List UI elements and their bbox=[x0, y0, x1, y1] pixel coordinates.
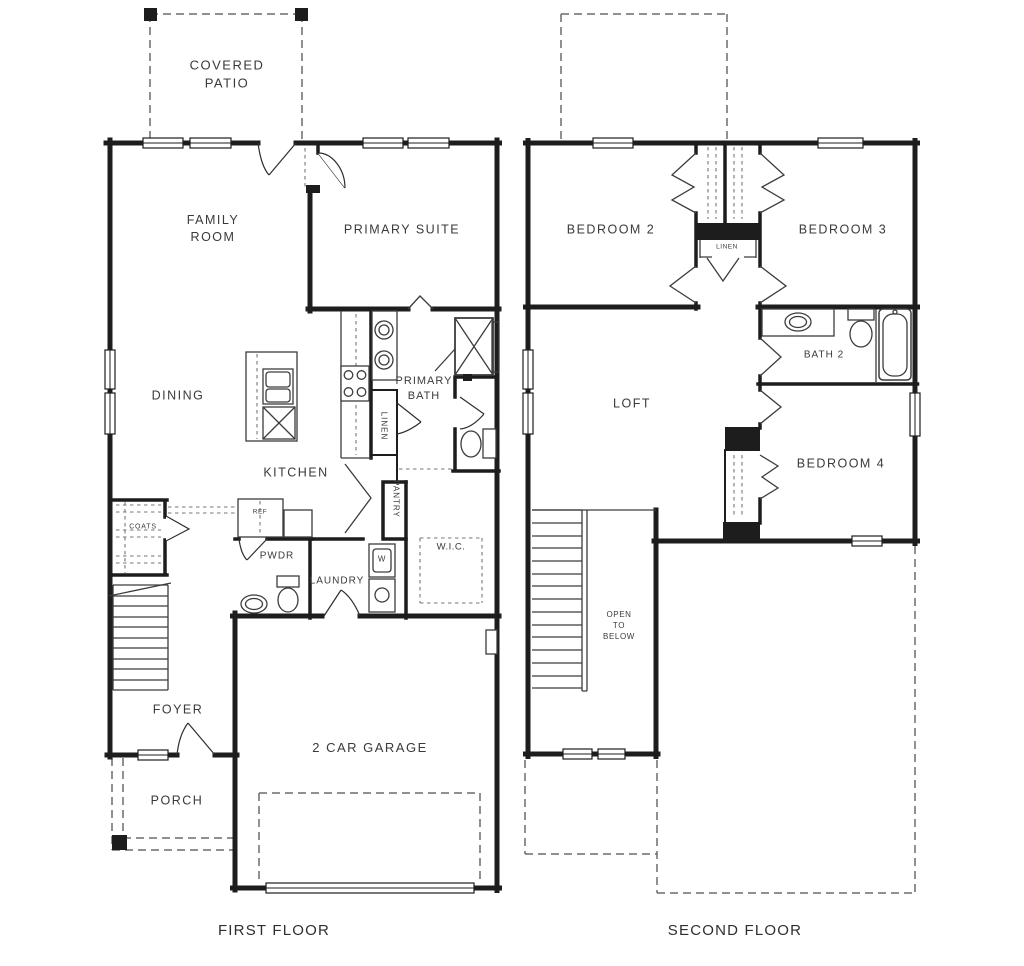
bedroom2-closet-bifold-icon bbox=[672, 153, 696, 213]
bath2-door-icon bbox=[760, 338, 781, 376]
kitchen-fixtures bbox=[168, 311, 371, 537]
bedroom3-closet-bifold-icon bbox=[760, 153, 784, 213]
label-wic: W.I.C. bbox=[437, 542, 466, 555]
label-linen-2: LINEN bbox=[716, 244, 738, 253]
label-foyer: FOYER bbox=[153, 702, 204, 719]
primary-suite-door-icon bbox=[318, 153, 345, 188]
front-door-icon bbox=[177, 723, 215, 755]
bedroom3-door-icon bbox=[760, 266, 786, 303]
coats-closet-interior bbox=[116, 502, 161, 573]
second-floor-plan bbox=[523, 14, 920, 893]
patio-door-icon bbox=[258, 143, 296, 175]
shower-icon bbox=[435, 318, 499, 381]
label-garage: 2 CAR GARAGE bbox=[312, 739, 428, 757]
stairs-first-floor bbox=[109, 583, 171, 690]
label-dining: DINING bbox=[152, 388, 205, 405]
cabinet-dash-line bbox=[168, 507, 237, 513]
label-primary-suite: PRIMARY SUITE bbox=[344, 222, 460, 239]
label-washer: W bbox=[378, 555, 386, 566]
label-bedroom2: BEDROOM 2 bbox=[567, 222, 656, 239]
toilet-icon bbox=[461, 429, 496, 458]
floor-plan-drawing bbox=[0, 0, 1024, 966]
garage-entry-door-icon bbox=[324, 590, 360, 616]
label-primary-bath: PRIMARY BATH bbox=[396, 374, 453, 404]
stairs-second-floor bbox=[532, 510, 587, 691]
label-porch: PORCH bbox=[151, 793, 204, 810]
caption-first-floor: FIRST FLOOR bbox=[218, 921, 330, 941]
coats-door-icon bbox=[166, 516, 189, 541]
first-floor-plan bbox=[105, 8, 500, 893]
vanity-icon bbox=[762, 309, 834, 336]
bedroom4-door-icon bbox=[760, 390, 781, 424]
range-icon bbox=[341, 366, 369, 401]
label-bedroom3: BEDROOM 3 bbox=[799, 222, 888, 239]
bath2-fixtures bbox=[762, 309, 911, 380]
label-linen: LINEN bbox=[378, 412, 389, 441]
label-pantry: PANTRY bbox=[390, 480, 401, 518]
roof-outline-porch bbox=[525, 760, 657, 854]
dryer-icon bbox=[369, 579, 395, 612]
bedroom2-door-icon bbox=[670, 266, 696, 303]
label-open-to-below: OPEN TO BELOW bbox=[603, 610, 635, 642]
floor-plan-image: COVERED PATIO FAMILY ROOM PRIMARY SUITE … bbox=[0, 0, 1024, 966]
sink-icon bbox=[241, 595, 267, 613]
label-bedroom4: BEDROOM 4 bbox=[797, 456, 886, 473]
label-bath2: BATH 2 bbox=[804, 348, 844, 362]
powder-room-fixtures bbox=[241, 576, 299, 613]
water-heater-icon bbox=[486, 630, 497, 654]
refrigerator-icon bbox=[238, 499, 283, 537]
kitchen-side-counter-icon bbox=[284, 510, 312, 537]
primary-bath-door-icon bbox=[397, 403, 421, 434]
label-pwdr: PWDR bbox=[260, 549, 295, 563]
label-covered-patio: COVERED PATIO bbox=[190, 56, 265, 91]
linen-door-icon bbox=[707, 258, 739, 281]
driveway-outline bbox=[259, 793, 480, 883]
toilet-room-door-icon bbox=[460, 397, 484, 429]
covered-patio-outline bbox=[144, 8, 308, 190]
toilet-icon bbox=[277, 576, 299, 612]
double-vanity-icon bbox=[372, 311, 397, 380]
roof-outline-garage bbox=[657, 546, 915, 893]
roof-outline-patio bbox=[561, 14, 727, 143]
hall-opening-icon bbox=[345, 464, 371, 533]
label-ref: REF bbox=[253, 509, 268, 518]
label-loft: LOFT bbox=[613, 396, 651, 413]
bedroom4-closet-bifold-icon bbox=[760, 455, 778, 499]
toilet-icon bbox=[848, 309, 874, 347]
bathtub-icon bbox=[879, 309, 911, 380]
label-coats: COATS bbox=[129, 522, 157, 531]
suite-opening-icon bbox=[408, 296, 433, 309]
caption-second-floor: SECOND FLOOR bbox=[668, 921, 802, 941]
label-kitchen: KITCHEN bbox=[263, 465, 328, 482]
kitchen-island-icon bbox=[246, 352, 297, 441]
label-laundry: LAUNDRY bbox=[310, 574, 365, 588]
label-family-room: FAMILY ROOM bbox=[187, 212, 240, 246]
